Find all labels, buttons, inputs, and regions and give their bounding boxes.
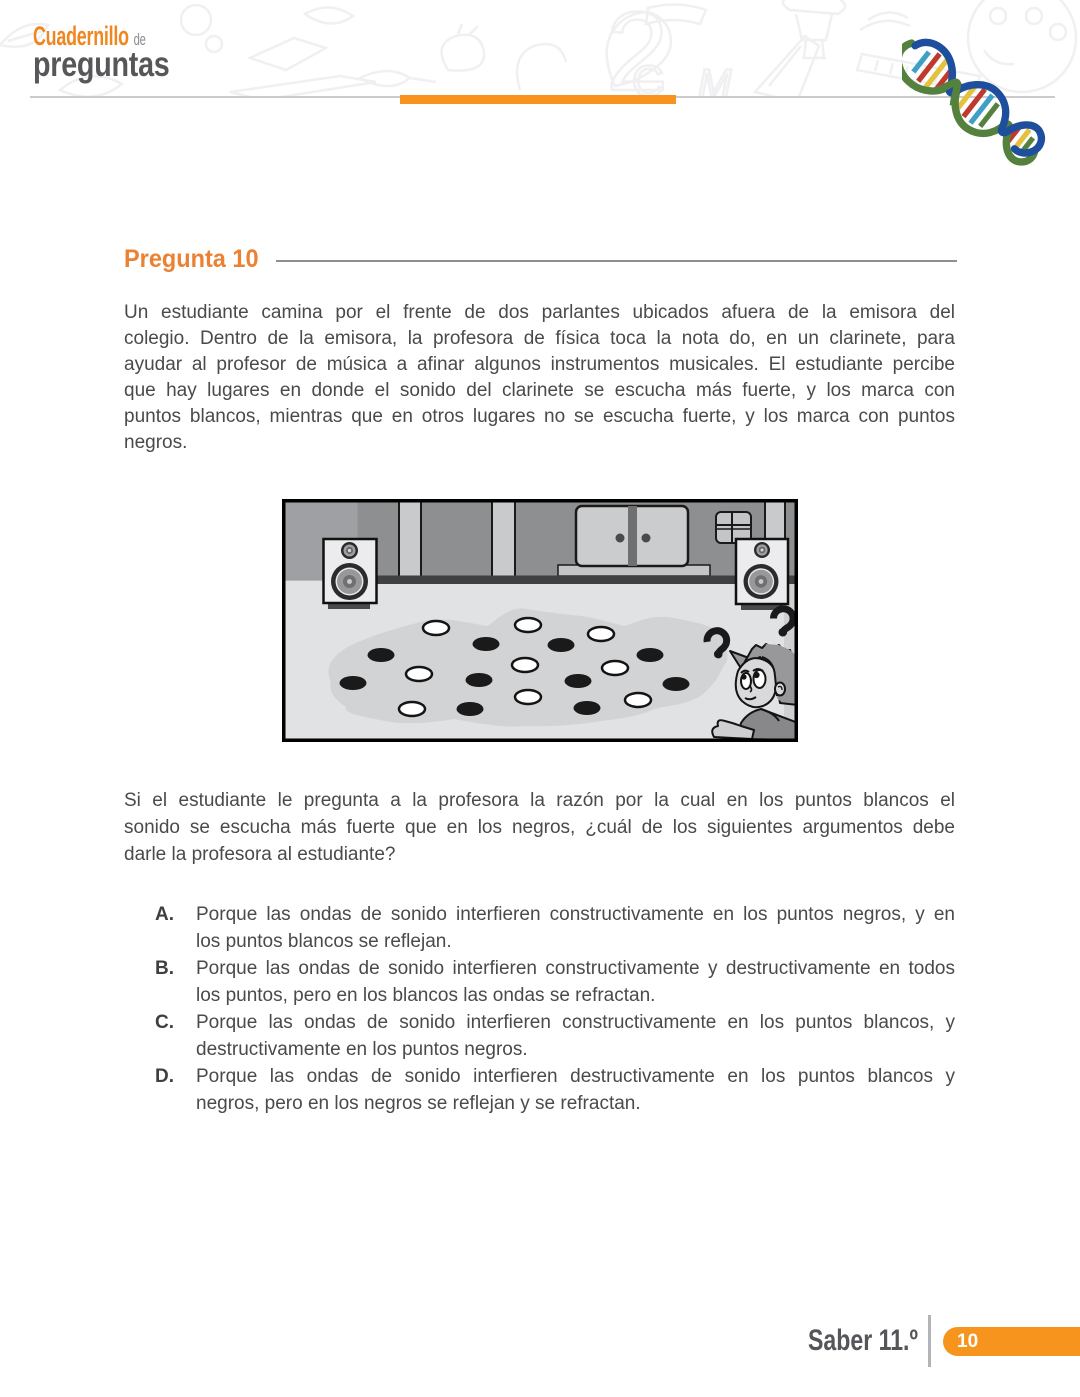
svg-text:C: C xyxy=(632,57,664,98)
svg-text:M: M xyxy=(698,62,732,98)
